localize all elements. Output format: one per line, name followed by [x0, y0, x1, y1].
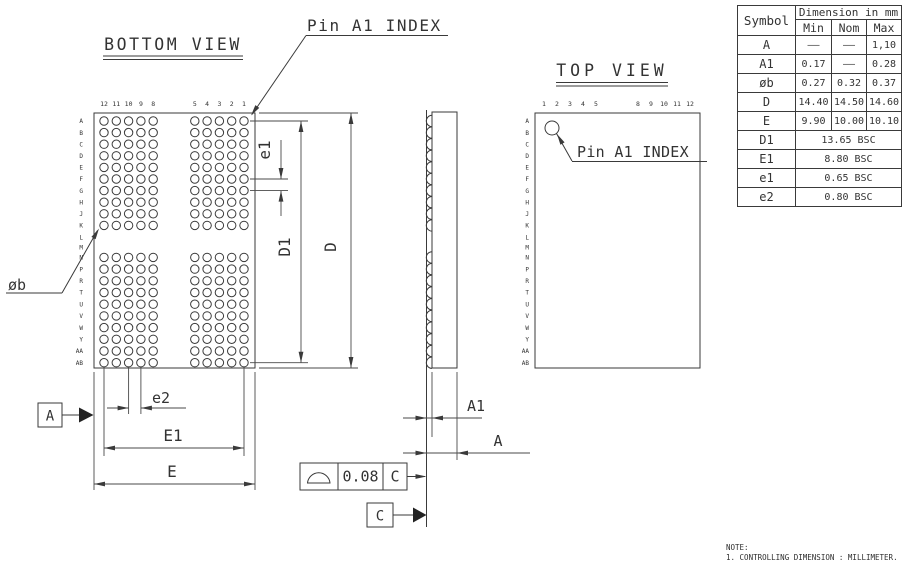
col-label-5: 5 [594, 100, 598, 108]
table-header-dimension: Dimension in mm [796, 6, 902, 20]
ball-Y [137, 335, 145, 343]
dimension-table: SymbolDimension in mmMinNomMaxA————1,10A… [737, 5, 902, 207]
row-label-B: B [79, 130, 83, 137]
row-label-P: P [525, 266, 529, 273]
table-symbol-cell: E1 [738, 150, 796, 169]
ball-R [228, 277, 236, 285]
table-symbol-cell: E [738, 112, 796, 131]
table-row-øb: øb0.270.320.37 [738, 74, 902, 93]
table-symbol-cell: A [738, 36, 796, 55]
title-underline [556, 83, 668, 87]
side-view-balls [426, 115, 432, 368]
ball-F [191, 175, 199, 183]
ball-C [137, 140, 145, 148]
ball-P [191, 265, 199, 273]
arrowhead [279, 191, 284, 202]
dim-label-A1: A1 [467, 397, 485, 415]
side-ball-W [426, 322, 432, 333]
ball-R [203, 277, 211, 285]
ball-E [215, 163, 223, 171]
ball-P [100, 265, 108, 273]
ball-W [228, 323, 236, 331]
table-nom-value: —— [832, 55, 867, 74]
ball-K [215, 221, 223, 229]
side-ball-K [426, 220, 432, 231]
row-label-R: R [525, 278, 529, 285]
ball-N [191, 253, 199, 261]
feature-control-frame: 0.08 C [300, 463, 427, 490]
ball-U [100, 300, 108, 308]
row-label-J: J [79, 211, 83, 218]
ball-AB [100, 359, 108, 367]
ball-C [191, 140, 199, 148]
ball-N [100, 253, 108, 261]
ball-C [112, 140, 120, 148]
ball-N [112, 253, 120, 261]
dim-label-A: A [493, 432, 502, 450]
note-line: 1. CONTROLLING DIMENSION : MILLIMETER. [726, 553, 898, 563]
top-view-title: TOP VIEW [556, 61, 667, 80]
ball-AB [228, 359, 236, 367]
col-label-4: 4 [205, 100, 209, 108]
side-ball-B [426, 127, 432, 138]
table-nom-value: 10.00 [832, 112, 867, 131]
ball-T [100, 288, 108, 296]
ball-J [215, 210, 223, 218]
ball-D [215, 152, 223, 160]
ball-A [215, 117, 223, 125]
row-label-AB: AB [522, 360, 530, 367]
ball-A [100, 117, 108, 125]
ball-AA [149, 347, 157, 355]
dimension-a: A [403, 372, 530, 460]
row-label-V: V [525, 313, 529, 320]
side-ball-Y [426, 334, 432, 345]
arrowhead [555, 133, 565, 145]
dimension-a1: A1 [403, 372, 485, 437]
arrowhead [249, 105, 259, 117]
ball-C [149, 140, 157, 148]
arrowhead [299, 352, 304, 363]
row-label-T: T [525, 290, 529, 297]
col-label-8: 8 [151, 100, 155, 108]
ball-AA [112, 347, 120, 355]
ball-C [203, 140, 211, 148]
ball-G [191, 186, 199, 194]
table-nom-value: —— [832, 36, 867, 55]
ball-W [203, 323, 211, 331]
extension-line [250, 179, 288, 191]
table-max-value: 0.37 [867, 74, 902, 93]
arrowhead [416, 474, 427, 479]
ball-AA [191, 347, 199, 355]
table-span-value: 8.80 BSC [796, 150, 902, 169]
row-label-E: E [79, 165, 83, 172]
row-label-V: V [79, 313, 83, 320]
ball-AA [100, 347, 108, 355]
dimension-e2: e2 [107, 389, 186, 410]
ball-A [228, 117, 236, 125]
row-label-AA: AA [522, 348, 530, 355]
ball-W [124, 323, 132, 331]
ball-C [228, 140, 236, 148]
col-label-8: 8 [636, 100, 640, 108]
ball-K [240, 221, 248, 229]
ball-A [124, 117, 132, 125]
ball-N [228, 253, 236, 261]
ball-U [203, 300, 211, 308]
table-row-E: E9.9010.0010.10 [738, 112, 902, 131]
ball-J [240, 210, 248, 218]
dim-label-e1: e1 [255, 140, 274, 159]
ball-R [191, 277, 199, 285]
row-label-H: H [79, 199, 83, 206]
ball-N [124, 253, 132, 261]
side-ball-AA [426, 345, 432, 356]
row-label-M: M [525, 245, 529, 252]
side-ball-E [426, 162, 432, 173]
col-label-9: 9 [649, 100, 653, 108]
ball-D [124, 152, 132, 160]
ball-AB [215, 359, 223, 367]
ball-E [124, 163, 132, 171]
ball-G [100, 186, 108, 194]
ball-W [112, 323, 120, 331]
ball-K [137, 221, 145, 229]
ball-U [124, 300, 132, 308]
ball-G [228, 186, 236, 194]
row-label-D: D [79, 153, 83, 160]
arrowhead [279, 168, 284, 179]
note-heading: NOTE: [726, 543, 898, 553]
ball-P [228, 265, 236, 273]
dimension-e-span: E [94, 462, 255, 486]
side-ball-H [426, 197, 432, 208]
ball-H [149, 198, 157, 206]
side-ball-T [426, 287, 432, 298]
row-label-AB: AB [76, 360, 84, 367]
row-label-C: C [79, 141, 83, 148]
arrowhead [91, 227, 101, 239]
dim-label-E1: E1 [163, 426, 182, 445]
ball-P [124, 265, 132, 273]
arrowhead [94, 482, 105, 487]
col-label-11: 11 [673, 100, 681, 108]
fcf-datum-ref: C [390, 468, 399, 486]
bga-package-drawing: BOTTOM VIEW ABCDEFGHJKLMNPRTUVWYAAAB 121… [0, 0, 905, 571]
ball-J [228, 210, 236, 218]
ball-V [215, 312, 223, 320]
arrowhead [457, 451, 468, 456]
ball-P [137, 265, 145, 273]
ball-T [240, 288, 248, 296]
ball-B [203, 128, 211, 136]
table-row-e2: e20.80 BSC [738, 188, 902, 207]
ball-K [100, 221, 108, 229]
ball-G [124, 186, 132, 194]
col-label-5: 5 [193, 100, 197, 108]
ball-P [215, 265, 223, 273]
side-ball-G [426, 185, 432, 196]
ball-AB [124, 359, 132, 367]
ball-AA [124, 347, 132, 355]
ball-AB [112, 359, 120, 367]
ball-F [137, 175, 145, 183]
row-label-Y: Y [79, 337, 83, 344]
ball-H [100, 198, 108, 206]
row-label-R: R [79, 278, 83, 285]
ball-U [215, 300, 223, 308]
ball-Y [100, 335, 108, 343]
ball-E [100, 163, 108, 171]
dim-label-e2: e2 [152, 389, 170, 407]
ball-B [240, 128, 248, 136]
ball-N [137, 253, 145, 261]
ball-A [112, 117, 120, 125]
ball-F [112, 175, 120, 183]
row-label-W: W [525, 325, 529, 332]
ball-D [137, 152, 145, 160]
ball-F [228, 175, 236, 183]
ball-AA [215, 347, 223, 355]
table-max-value: 10.10 [867, 112, 902, 131]
ball-T [149, 288, 157, 296]
ball-E [137, 163, 145, 171]
table-row-A1: A10.17——0.28 [738, 55, 902, 74]
side-ball-R [426, 275, 432, 286]
row-label-U: U [525, 301, 529, 308]
ball-R [215, 277, 223, 285]
ball-AB [240, 359, 248, 367]
ball-J [191, 210, 199, 218]
ball-G [112, 186, 120, 194]
pin-a1-callout-bottom: Pin A1 INDEX [249, 16, 448, 117]
ball-U [191, 300, 199, 308]
table-row-D: D14.4014.5014.60 [738, 93, 902, 112]
table-row-e1: e10.65 BSC [738, 169, 902, 188]
dimension-e1: e1 [250, 140, 288, 216]
ball-K [228, 221, 236, 229]
side-ball-D [426, 150, 432, 161]
ball-T [228, 288, 236, 296]
table-symbol-cell: A1 [738, 55, 796, 74]
ball-F [149, 175, 157, 183]
ball-B [137, 128, 145, 136]
ball-V [240, 312, 248, 320]
col-label-11: 11 [112, 100, 120, 108]
col-label-9: 9 [139, 100, 143, 108]
side-ball-P [426, 263, 432, 274]
ball-R [100, 277, 108, 285]
row-label-A: A [525, 118, 529, 125]
pin-a1-callout-top: Pin A1 INDEX [555, 133, 707, 162]
table-header-symbol: Symbol [738, 6, 796, 36]
ball-A [203, 117, 211, 125]
col-label-10: 10 [125, 100, 133, 108]
row-label-T: T [79, 290, 83, 297]
ball-F [100, 175, 108, 183]
row-label-E: E [525, 165, 529, 172]
ball-E [112, 163, 120, 171]
side-ball-V [426, 310, 432, 321]
ball-D [203, 152, 211, 160]
ball-U [228, 300, 236, 308]
ball-AA [228, 347, 236, 355]
row-label-N: N [525, 255, 529, 262]
ball-V [203, 312, 211, 320]
table-row-E1: E18.80 BSC [738, 150, 902, 169]
arrowhead [141, 406, 152, 411]
pin-a1-index-marker [545, 121, 559, 135]
ball-B [215, 128, 223, 136]
table-min-value: 9.90 [796, 112, 832, 131]
row-label-C: C [525, 141, 529, 148]
row-label-F: F [525, 176, 529, 183]
row-label-D: D [525, 153, 529, 160]
col-label-10: 10 [660, 100, 668, 108]
ball-R [137, 277, 145, 285]
ball-Y [149, 335, 157, 343]
title-underline [103, 56, 243, 60]
row-label-A: A [79, 118, 83, 125]
ball-W [137, 323, 145, 331]
leader-line [252, 36, 306, 115]
col-label-3: 3 [568, 100, 572, 108]
ball-G [149, 186, 157, 194]
row-label-P: P [79, 266, 83, 273]
row-label-U: U [79, 301, 83, 308]
table-symbol-cell: e2 [738, 188, 796, 207]
ball-diameter-label: øb [8, 276, 26, 294]
table-min-value: —— [796, 36, 832, 55]
row-label-W: W [79, 325, 83, 332]
datum-a-flag: A [38, 403, 94, 427]
ball-Y [124, 335, 132, 343]
fcf-tolerance-value: 0.08 [342, 468, 378, 486]
ball-G [203, 186, 211, 194]
ball-T [203, 288, 211, 296]
row-label-B: B [525, 130, 529, 137]
table-span-value: 0.80 BSC [796, 188, 902, 207]
ball-W [191, 323, 199, 331]
datum-a-label: A [46, 409, 55, 425]
ball-E [149, 163, 157, 171]
ball-J [149, 210, 157, 218]
ball-J [124, 210, 132, 218]
ball-D [112, 152, 120, 160]
ball-C [124, 140, 132, 148]
ball-W [215, 323, 223, 331]
ball-A [137, 117, 145, 125]
row-label-J: J [525, 211, 529, 218]
top-view: TOP VIEW ABCDEFGHJKLMNPRTUVWYAAAB 123458… [522, 61, 707, 368]
pin-a1-index-label: Pin A1 INDEX [307, 16, 442, 35]
col-label-3: 3 [217, 100, 221, 108]
col-label-1: 1 [242, 100, 246, 108]
ball-AB [191, 359, 199, 367]
ball-G [240, 186, 248, 194]
arrowhead [244, 482, 255, 487]
table-min-value: 14.40 [796, 93, 832, 112]
ball-R [149, 277, 157, 285]
side-view-body-outline [432, 112, 457, 368]
ball-W [240, 323, 248, 331]
ball-H [228, 198, 236, 206]
pin-a1-index-label: Pin A1 INDEX [577, 143, 689, 161]
dimension-table-grid: SymbolDimension in mmMinNomMaxA————1,10A… [737, 5, 902, 207]
side-ball-C [426, 139, 432, 150]
arrowhead [432, 416, 443, 421]
ball-Y [228, 335, 236, 343]
row-label-H: H [525, 199, 529, 206]
side-ball-A [426, 115, 432, 126]
arrowhead [118, 406, 129, 411]
ball-D [240, 152, 248, 160]
ball-R [240, 277, 248, 285]
row-label-K: K [525, 223, 529, 230]
arrowhead [416, 451, 427, 456]
ball-J [112, 210, 120, 218]
table-row-D1: D113.65 BSC [738, 131, 902, 150]
row-label-Y: Y [525, 337, 529, 344]
table-max-value: 14.60 [867, 93, 902, 112]
ball-D [100, 152, 108, 160]
side-ball-F [426, 173, 432, 184]
ball-A [149, 117, 157, 125]
side-ball-N [426, 252, 432, 263]
table-symbol-cell: øb [738, 74, 796, 93]
ball-U [149, 300, 157, 308]
table-nom-value: 14.50 [832, 93, 867, 112]
ball-K [149, 221, 157, 229]
ball-C [215, 140, 223, 148]
arrowhead [416, 416, 427, 421]
ball-U [137, 300, 145, 308]
col-label-12: 12 [686, 100, 694, 108]
dim-label-d: D [321, 242, 340, 252]
row-labels: ABCDEFGHJKLMNPRTUVWYAAAB [522, 118, 530, 367]
ball-K [112, 221, 120, 229]
ball-P [240, 265, 248, 273]
side-ball-J [426, 208, 432, 219]
ball-Y [191, 335, 199, 343]
ball-F [240, 175, 248, 183]
ball-AA [137, 347, 145, 355]
row-label-G: G [79, 188, 83, 195]
ball-V [112, 312, 120, 320]
ball-AA [240, 347, 248, 355]
ball-H [240, 198, 248, 206]
drawing-note: NOTE: 1. CONTROLLING DIMENSION : MILLIME… [726, 543, 898, 563]
ball-D [191, 152, 199, 160]
column-labels: 1211109854321 [100, 100, 246, 108]
ball-B [149, 128, 157, 136]
table-symbol-cell: D [738, 93, 796, 112]
row-labels: ABCDEFGHJKLMNPRTUVWYAAAB [76, 118, 84, 367]
ball-Y [112, 335, 120, 343]
ball-V [124, 312, 132, 320]
ball-U [240, 300, 248, 308]
row-label-M: M [79, 245, 83, 252]
ball-V [149, 312, 157, 320]
ball-V [137, 312, 145, 320]
ball-B [124, 128, 132, 136]
row-label-G: G [525, 188, 529, 195]
ball-P [149, 265, 157, 273]
row-label-K: K [79, 223, 83, 230]
row-label-AA: AA [76, 348, 84, 355]
row-label-F: F [79, 176, 83, 183]
